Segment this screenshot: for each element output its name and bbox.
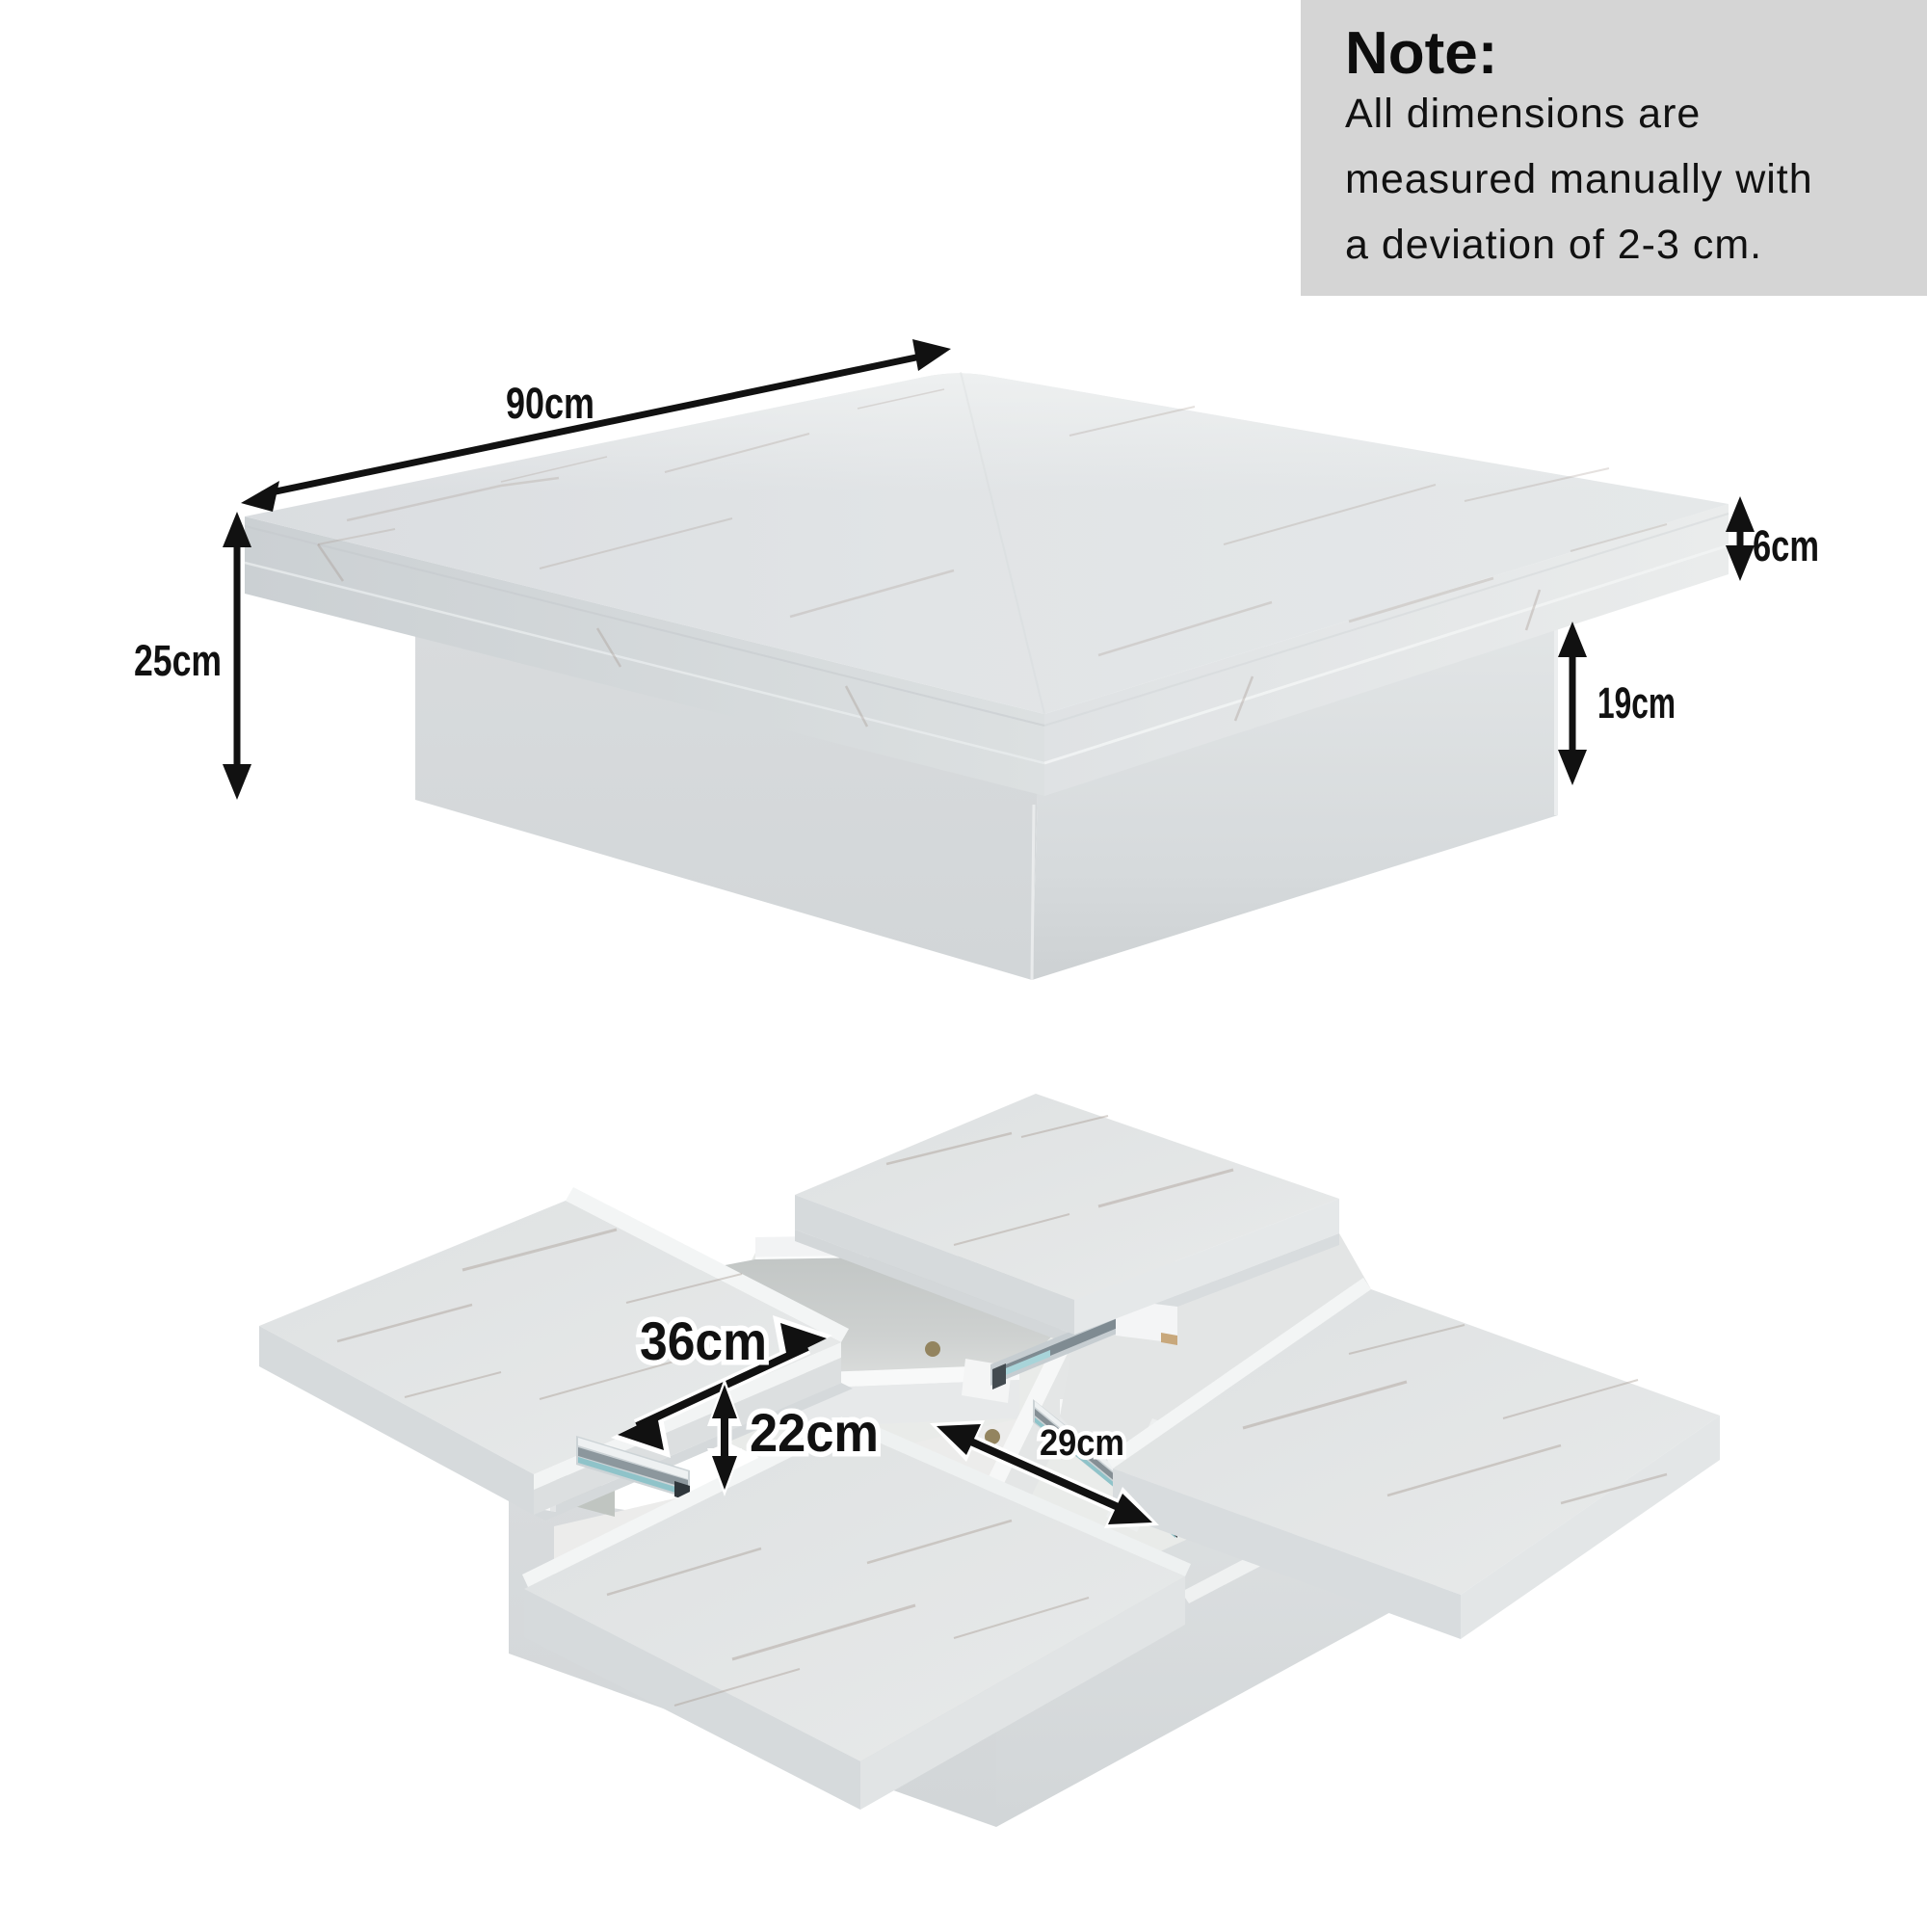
svg-text:Note:: Note: — [1345, 20, 1497, 87]
svg-text:36cm: 36cm — [640, 1310, 767, 1371]
svg-text:29cm: 29cm — [1040, 1423, 1124, 1464]
svg-text:90cm: 90cm — [506, 379, 594, 428]
svg-text:measured manually with: measured manually with — [1345, 156, 1813, 202]
svg-text:25cm: 25cm — [134, 636, 222, 685]
svg-text:All dimensions are: All dimensions are — [1345, 91, 1701, 137]
svg-text:22cm: 22cm — [750, 1402, 879, 1463]
svg-text:6cm: 6cm — [1753, 521, 1819, 570]
svg-text:19cm: 19cm — [1597, 678, 1676, 728]
svg-text:a deviation of 2-3 cm.: a deviation of 2-3 cm. — [1345, 222, 1762, 268]
